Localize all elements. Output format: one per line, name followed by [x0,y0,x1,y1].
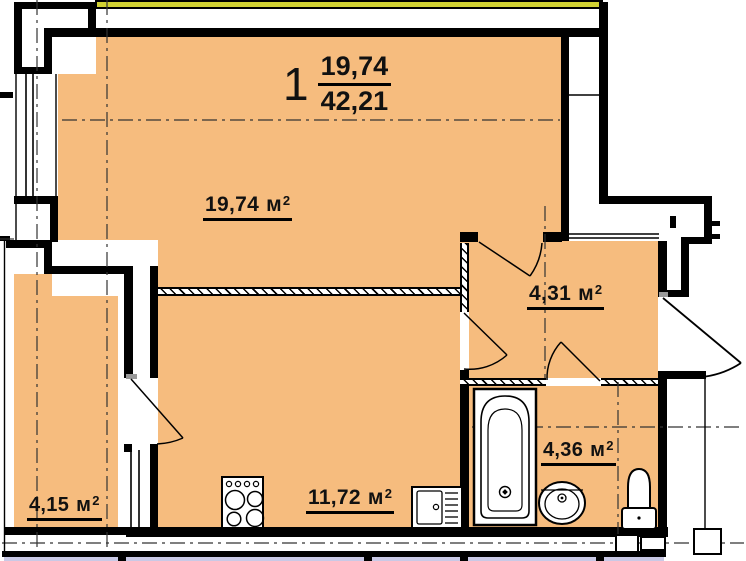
area-fraction: 19,74 42,21 [318,52,392,116]
apartment-type-label: 1 19,74 42,21 [283,52,391,116]
room-area-label-living: 19,74м2 [203,193,292,221]
floor-plan: 1 19,74 42,21 19,74м2 4,31м2 4,36м2 11,7… [0,0,746,561]
door-entrance [663,298,741,378]
toilet [622,469,656,529]
room-area-label-balcony: 4,15м2 [27,493,102,521]
total-area-value: 42,21 [318,86,392,117]
wash-basin [539,482,585,524]
door-kitchen-hallway [464,313,507,369]
room-area-label-bathroom: 4,36м2 [541,438,616,466]
thin-lines [5,73,706,551]
door-balcony [131,379,183,444]
window-living-left [26,74,33,196]
stove [222,477,264,528]
room-area-label-kitchen: 11,72м2 [306,486,394,514]
rooms-count: 1 [283,61,309,107]
service-shafts [616,529,721,554]
door-living-hallway [479,242,542,276]
living-area-value: 19,74 [318,52,392,86]
window-kitchen-balcony [131,450,139,527]
room-area-label-hallway: 4,31м2 [527,282,604,310]
bathtub [474,389,536,525]
kitchen-sink [412,487,462,528]
door-bathroom [547,342,600,381]
